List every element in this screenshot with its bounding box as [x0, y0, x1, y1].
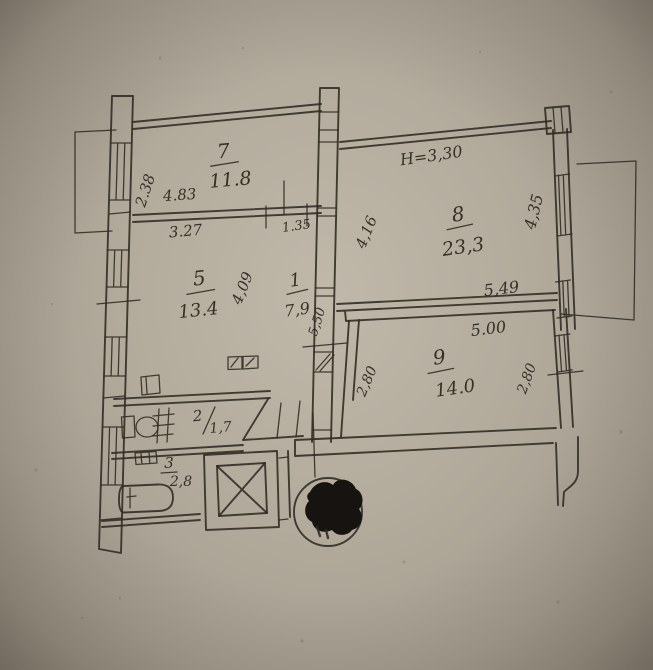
room3-number: 3 — [164, 454, 174, 472]
room7-walls — [133, 104, 321, 228]
ink-blob-icon — [305, 480, 362, 535]
dim-room8-width: 5,49 — [482, 277, 520, 300]
ceiling-height-note: Н=3,30 — [398, 142, 464, 170]
room7-number: 7 — [216, 138, 231, 163]
entry-tail-wall — [556, 437, 578, 506]
room7-area: 11.8 — [208, 167, 252, 193]
toilet-icon — [122, 416, 159, 438]
room3-area: 2,8 — [169, 474, 192, 490]
room1-label: 1 7,9 — [283, 269, 311, 321]
bathtub-icon — [119, 484, 173, 512]
room2-number: 2 — [191, 407, 203, 426]
radiator-symbol — [228, 356, 258, 370]
elevator-shaft-icon — [204, 451, 290, 530]
dim-room8-left: 4,16 — [351, 213, 381, 252]
room9-number: 9 — [431, 344, 447, 369]
dim-room5-height: 4,09 — [227, 269, 257, 308]
dim-room9-width: 5.00 — [469, 317, 507, 340]
central-wall — [312, 88, 339, 442]
dim-hall-width: 1.35 — [281, 217, 312, 236]
room1-number: 1 — [288, 269, 302, 291]
dim-room7-left: 2.38 — [131, 172, 159, 210]
door-symbol — [141, 375, 160, 395]
room5-area: 13.4 — [177, 298, 219, 323]
room5-number: 5 — [192, 265, 207, 290]
dim-room5-width: 3.27 — [168, 221, 203, 242]
room9-label: 9 14.0 — [425, 344, 477, 402]
room2-area: 1,7 — [209, 419, 233, 437]
room9-area: 14.0 — [434, 375, 477, 401]
room2-label: 2 1,7 — [191, 407, 233, 437]
floor-plan-photo: 7 11.8 8 23,3 5 13.4 1 7,9 9 14.0 2 1,7 … — [0, 0, 653, 670]
dim-room9-right: 2,80 — [514, 361, 540, 397]
dim-room7-width: 4.83 — [161, 185, 197, 205]
wc-walls — [114, 391, 303, 440]
room1-area: 7,9 — [283, 298, 311, 320]
room8-area: 23,3 — [440, 233, 486, 261]
seal-leader-line — [313, 413, 315, 477]
room8-number: 8 — [450, 201, 466, 227]
room5-label: 5 13.4 — [177, 265, 219, 323]
vent-grid-icon — [153, 408, 174, 443]
room7-label: 7 11.8 — [208, 138, 252, 193]
room8-label: 8 23,3 — [440, 200, 486, 261]
dim-room8-right: 4,35 — [520, 192, 547, 232]
outer-left-wall — [99, 96, 133, 553]
dim-room9-left: 2,80 — [353, 364, 380, 400]
seal-stamp — [294, 478, 363, 546]
room8-room9-wall — [337, 293, 557, 321]
floor-plan-drawing: 7 11.8 8 23,3 5 13.4 1 7,9 9 14.0 2 1,7 … — [0, 0, 653, 670]
